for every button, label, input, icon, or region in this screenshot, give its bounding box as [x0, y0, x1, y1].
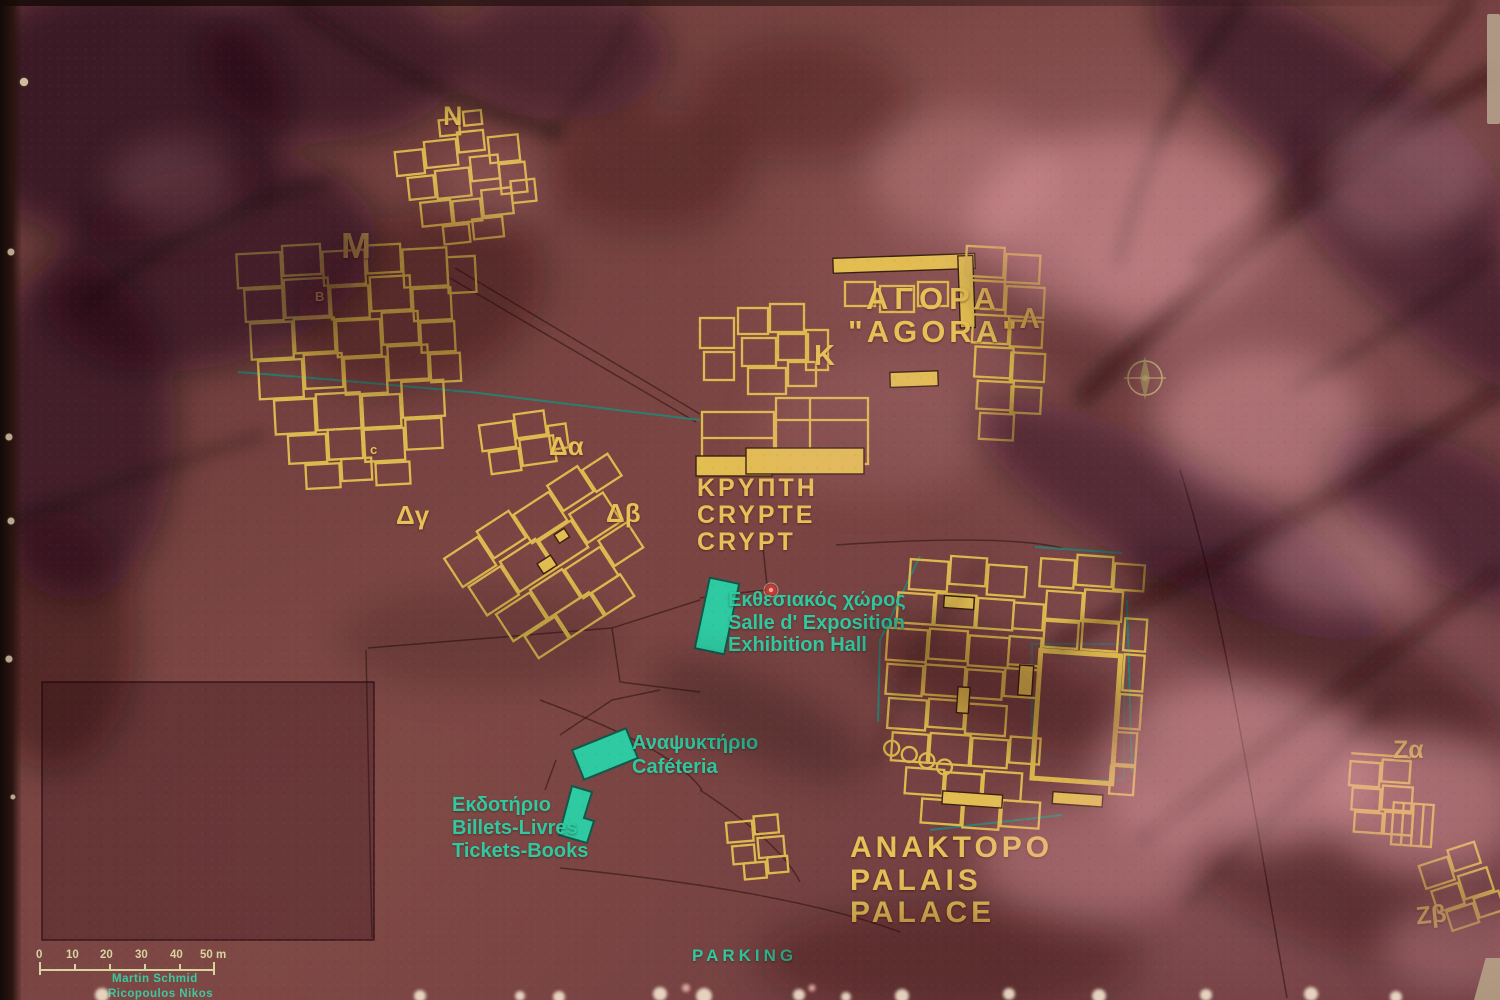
sector-label-b: B: [315, 290, 324, 303]
cafeteria-label-greek: Αναψυκτήριο: [632, 733, 758, 753]
frame-right-corner: [1487, 14, 1500, 124]
palace-label-french: PALAIS: [850, 866, 982, 896]
parking-area-patch: [42, 682, 374, 940]
sector-label-delta-beta: Δβ: [606, 500, 641, 526]
tickets-label-greek: Εκδοτήριο: [452, 795, 551, 815]
sector-label-k: K: [814, 342, 835, 371]
crypt-label-french: CRYPTE: [697, 503, 815, 528]
sector-label-delta-gamma: Δγ: [396, 502, 429, 528]
palace-label-greek: ΑΝΑΚΤΟΡΟ: [850, 833, 1053, 863]
agora-label-greek: ΑΓΟΡΑ: [866, 283, 1002, 314]
sector-label-lambda: Λ: [1020, 305, 1039, 334]
exhibition-label-greek: Εκθεσιακός χώρος: [728, 590, 906, 610]
building-cluster-crypt: [696, 304, 868, 476]
parking-label: PARKING: [692, 947, 797, 964]
modern-buildings: [559, 578, 739, 843]
building-cluster-m: [236, 236, 486, 492]
scale-tick-50m: 50 m: [200, 950, 226, 962]
building-cluster-zeta-alpha: [1345, 753, 1437, 847]
credit-line-1: Martin Schmid: [112, 974, 198, 986]
agora-label-translit: "AGORA": [848, 316, 1021, 347]
cafeteria-label-french: Caféteria: [632, 757, 718, 777]
sector-label-zeta-alpha: Ζα: [1393, 738, 1424, 763]
tickets-label-french: Billets-Livres: [452, 818, 578, 838]
crypt-label-greek: ΚΡΥΠΤΗ: [697, 476, 818, 501]
palace-label-english: PALACE: [850, 898, 995, 928]
cafeteria-building: [572, 728, 638, 779]
exhibition-label-french: Salle d' Exposition: [728, 613, 905, 633]
building-cluster-palace: [875, 542, 1152, 839]
building-cluster-n: [391, 105, 540, 249]
site-map-board: N M B c K Λ Δα Δβ Δγ Ζα Ζβ ΑΓΟΡΑ "AGORA"…: [0, 0, 1500, 1000]
scale-tick-20: 20: [100, 950, 113, 962]
building-cluster-south: [726, 814, 789, 881]
compass-icon: [1124, 356, 1166, 400]
sector-label-n: N: [443, 103, 463, 130]
scale-tick-40: 40: [170, 950, 183, 962]
frame-top-edge: [0, 0, 1500, 6]
sector-label-m: M: [341, 228, 371, 264]
tickets-label-english: Tickets-Books: [452, 841, 588, 861]
path-lines: [42, 268, 1287, 998]
credit-line-2: Ricopoulos Nikos: [108, 989, 213, 1000]
sector-label-delta-alpha: Δα: [549, 433, 584, 459]
scale-tick-0: 0: [36, 950, 42, 962]
crypt-label-english: CRYPT: [697, 530, 796, 555]
scale-tick-30: 30: [135, 950, 148, 962]
exhibition-label-english: Exhibition Hall: [728, 635, 867, 655]
sector-label-c: c: [370, 443, 377, 456]
scale-tick-10: 10: [66, 950, 79, 962]
sector-label-zeta-beta: Ζβ: [1415, 901, 1448, 929]
frame-left-edge: [0, 0, 22, 1000]
